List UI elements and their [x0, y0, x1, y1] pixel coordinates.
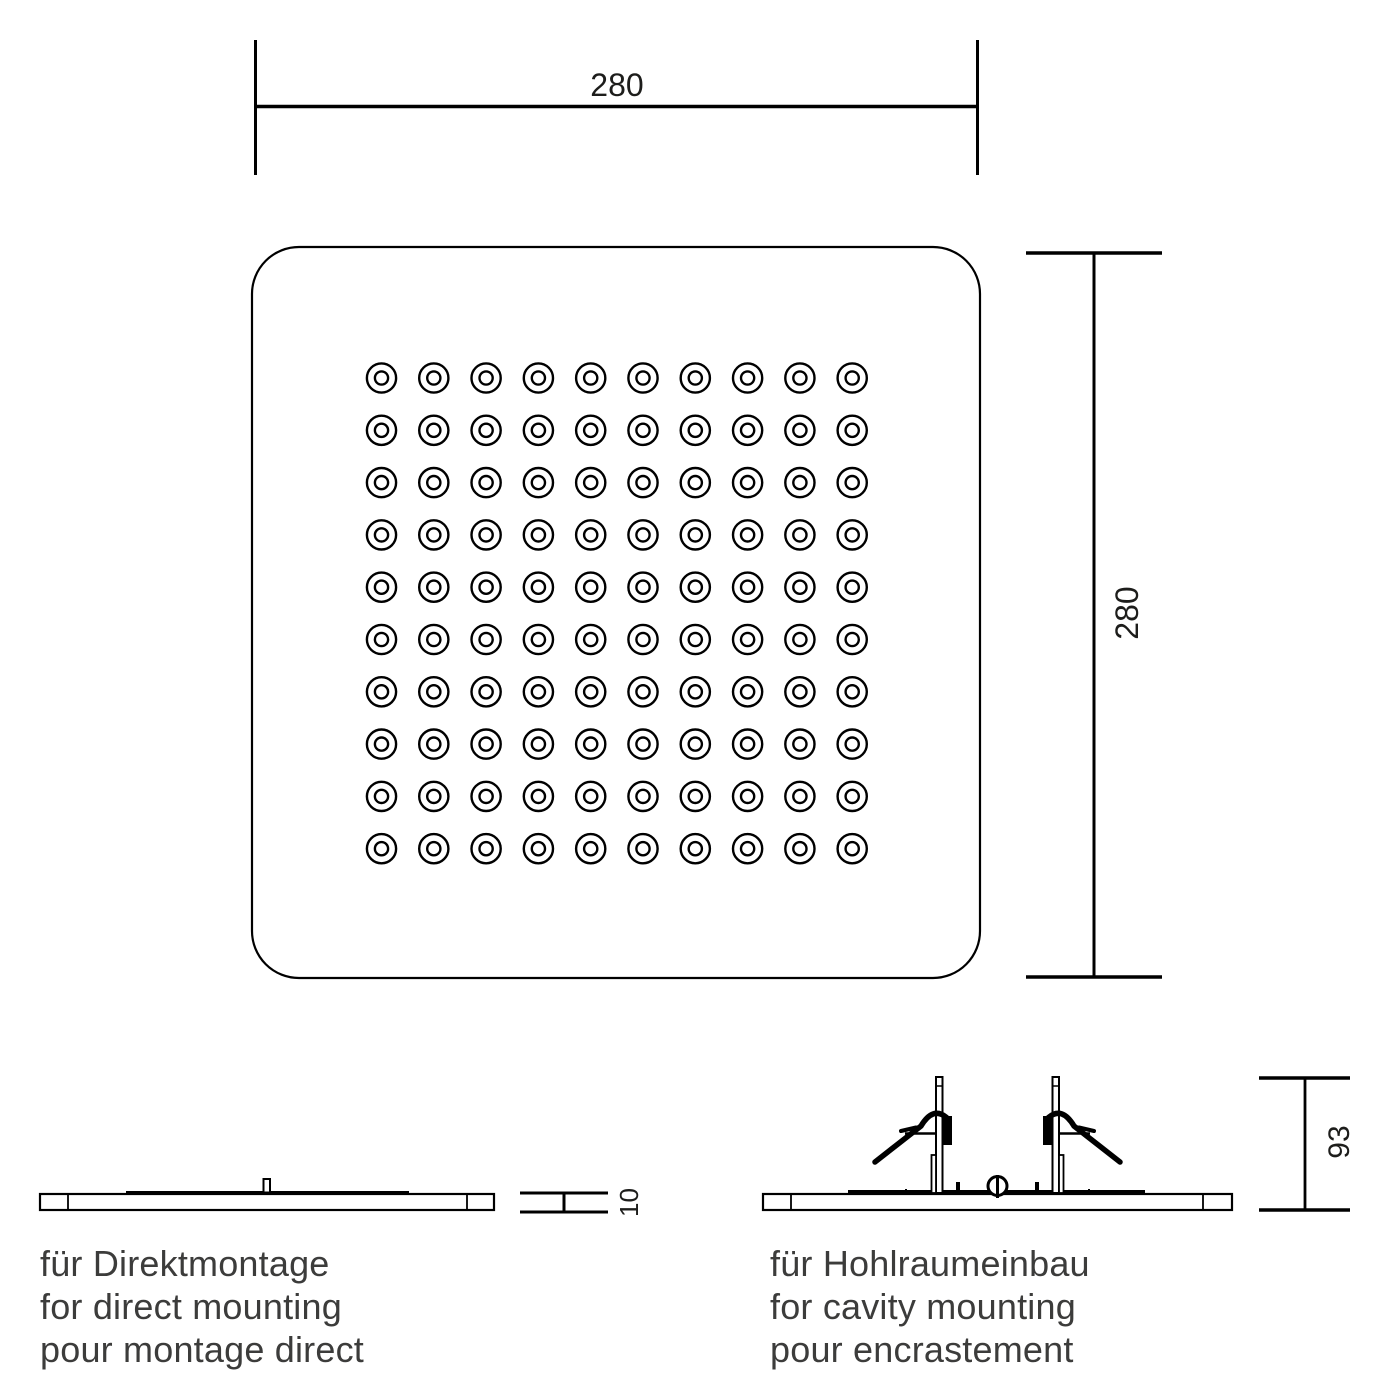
caption-line-de: für Hohlraumeinbau [770, 1242, 1090, 1285]
direct-mount-profile [40, 1179, 494, 1210]
width-dimension-label: 280 [590, 67, 643, 103]
thickness-dimension: 10 [520, 1188, 644, 1217]
panel-top-view [252, 247, 980, 978]
caption-line-de: für Direktmontage [40, 1242, 364, 1285]
caption-line-en: for cavity mounting [770, 1285, 1090, 1328]
clip-post [936, 1077, 943, 1193]
side-height-dimension: 280 [1026, 253, 1162, 977]
technical-drawing: 280 280 [0, 0, 1400, 1400]
spring-clip-right [1037, 1077, 1120, 1194]
height-dimension-label: 280 [1109, 586, 1145, 639]
spring-clip-left [875, 1077, 958, 1194]
panel-section [40, 1194, 494, 1210]
clip-height-dimension-label: 93 [1323, 1125, 1356, 1158]
clip-height-dimension: 93 [1259, 1078, 1356, 1210]
cavity-mount-profile [763, 1077, 1232, 1210]
clip-block [943, 1116, 952, 1145]
caption-line-fr: pour montage direct [40, 1328, 364, 1371]
fixing-pin [264, 1179, 271, 1193]
clip-prong [932, 1155, 937, 1193]
caption-line-fr: pour encrastement [770, 1328, 1090, 1371]
caption-line-en: for direct mounting [40, 1285, 364, 1328]
technical-drawing-page: 280 280 [0, 0, 1400, 1400]
caption-direct-mounting: für Direktmontage for direct mounting po… [40, 1242, 364, 1371]
panel-outline [252, 247, 980, 978]
top-width-dimension: 280 [256, 40, 978, 175]
caption-cavity-mounting: für Hohlraumeinbau for cavity mounting p… [770, 1242, 1090, 1371]
thickness-dimension-label: 10 [614, 1188, 644, 1217]
